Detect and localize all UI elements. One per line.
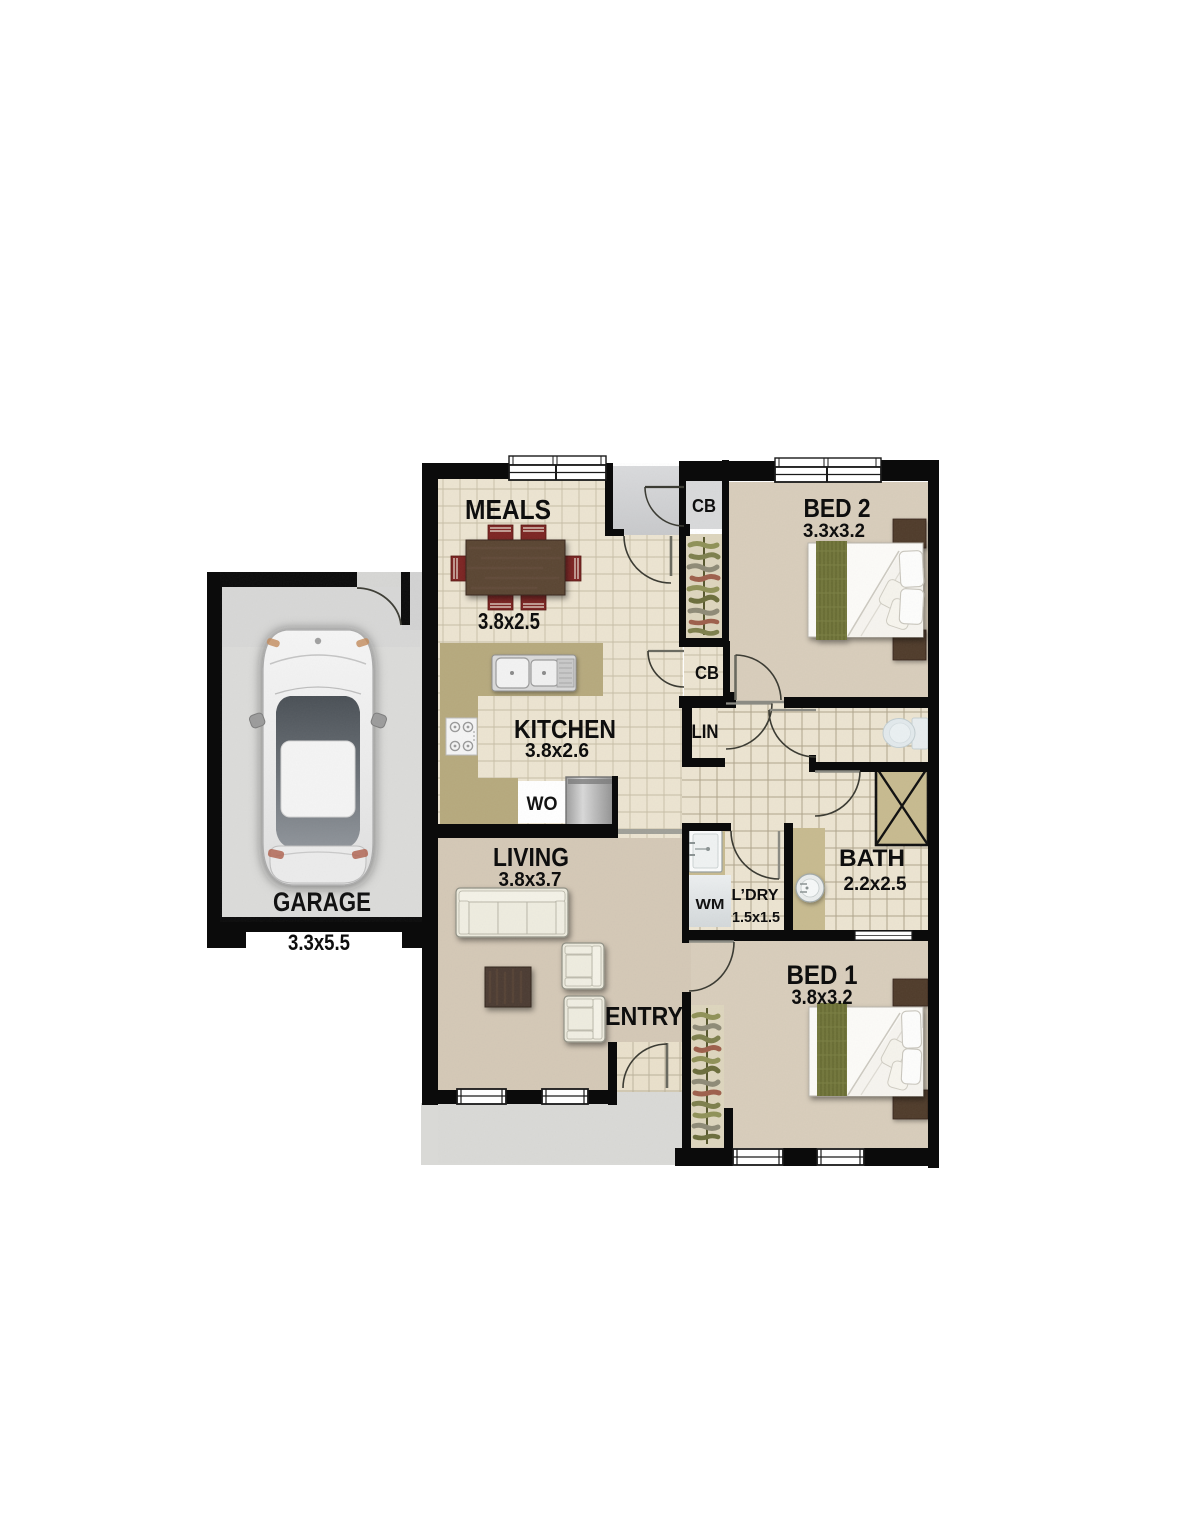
svg-text:3.3x3.2: 3.3x3.2: [803, 521, 865, 542]
svg-text:CB: CB: [695, 663, 719, 683]
svg-text:BED 2: BED 2: [804, 493, 871, 523]
svg-text:MEALS: MEALS: [465, 494, 551, 525]
svg-text:3.3x5.5: 3.3x5.5: [288, 930, 350, 955]
svg-text:3.8x3.7: 3.8x3.7: [499, 869, 562, 891]
svg-text:3.8x2.6: 3.8x2.6: [525, 740, 589, 762]
svg-text:L’DRY: L’DRY: [732, 887, 780, 904]
svg-text:CB: CB: [692, 496, 716, 516]
svg-text:3.8x2.5: 3.8x2.5: [478, 608, 540, 634]
svg-text:LIVING: LIVING: [493, 842, 569, 872]
svg-text:ENTRY: ENTRY: [605, 1001, 683, 1031]
svg-text:3.8x3.2: 3.8x3.2: [792, 986, 853, 1009]
svg-text:2.2x2.5: 2.2x2.5: [844, 873, 907, 895]
svg-text:1.5x1.5: 1.5x1.5: [732, 910, 780, 926]
svg-text:LIN: LIN: [692, 722, 719, 743]
svg-text:BATH: BATH: [839, 845, 905, 872]
